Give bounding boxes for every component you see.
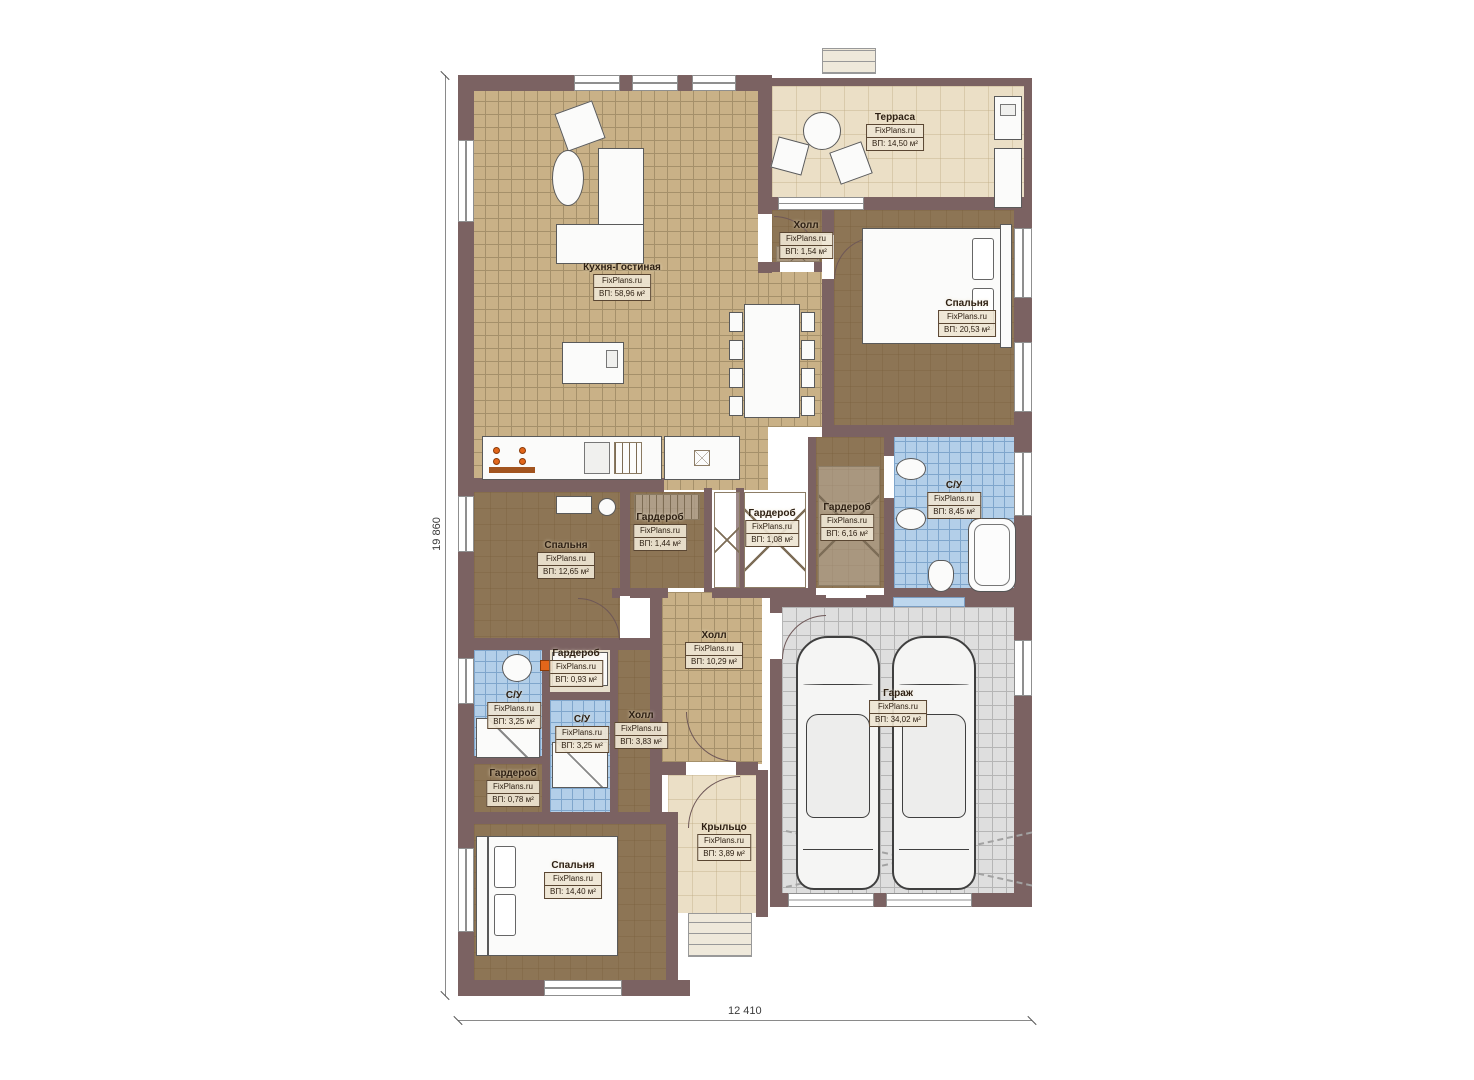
room-label-terrace: Терраса FixPlans.ru ВП: 14,50 м²: [866, 112, 924, 151]
room-label-wardrobe-3: Гардероб FixPlans.ru ВП: 6,16 м²: [820, 502, 874, 541]
room-name: Гардероб: [633, 512, 687, 523]
washbasin-round: [502, 654, 532, 682]
room-label-wardrobe-1: Гардероб FixPlans.ru ВП: 1,44 м²: [633, 512, 687, 551]
sofa-horizontal: [556, 224, 644, 264]
dining-chair: [801, 340, 815, 360]
dimension-label-bottom: 12 410: [728, 1005, 762, 1017]
car-2: [892, 636, 976, 890]
floor-plan-canvas: 19 860 12 410 Терраса FixPlans.ru ВП: 14…: [0, 0, 1474, 1080]
kitchen-sink: [584, 442, 610, 474]
window-top-2: [632, 75, 678, 91]
room-label-wardrobe-4: Гардероб FixPlans.ru ВП: 0,93 м²: [549, 648, 603, 687]
wall-wardrobe1-right: [704, 488, 712, 592]
wall-exterior-right: [1014, 197, 1032, 907]
room-area: ВП: 3,25 м²: [488, 716, 540, 728]
room-brand: FixPlans.ru: [545, 873, 601, 886]
dining-chair: [801, 396, 815, 416]
car-1: [796, 636, 880, 890]
room-brand: FixPlans.ru: [780, 233, 832, 246]
room-area: ВП: 3,25 м²: [556, 740, 608, 752]
island-sink: [606, 350, 618, 368]
stove-burner: [519, 458, 526, 465]
dishwasher-x-icon: [694, 450, 710, 466]
kitchen-appliance: [614, 442, 642, 474]
room-label-hall-top: Холл FixPlans.ru ВП: 1,54 м²: [779, 220, 833, 259]
room-name: Холл: [779, 220, 833, 231]
coffee-table: [552, 150, 584, 206]
room-label-bedroom-right: Спальня FixPlans.ru ВП: 20,53 м²: [938, 298, 996, 337]
wall-bedroom-bottom-top: [458, 812, 678, 824]
room-brand: FixPlans.ru: [698, 835, 750, 848]
window-top-1: [574, 75, 620, 91]
room-name: Гардероб: [820, 502, 874, 513]
room-brand: FixPlans.ru: [928, 493, 980, 506]
bed-bottom-headboard: [476, 836, 488, 956]
room-brand: FixPlans.ru: [487, 781, 539, 794]
room-name: Холл: [614, 710, 668, 721]
room-label-bathroom-right: С/У FixPlans.ru ВП: 8,45 м²: [927, 480, 981, 519]
room-name: Крыльцо: [697, 822, 751, 833]
wall-kitchen-terrace: [758, 78, 772, 203]
room-brand: FixPlans.ru: [550, 661, 602, 674]
room-name: Гардероб: [745, 508, 799, 519]
room-name: Гардероб: [549, 648, 603, 659]
wardrobe-brace: [714, 492, 740, 588]
room-brand: FixPlans.ru: [594, 275, 650, 288]
room-label-kitchen-living: Кухня-Гостиная FixPlans.ru ВП: 58,96 м²: [583, 262, 661, 301]
garage-door-2: [886, 893, 972, 907]
washbasin: [896, 458, 926, 480]
room-area: ВП: 12,65 м²: [538, 566, 594, 578]
room-name: Спальня: [938, 298, 996, 309]
oven-strip: [489, 467, 535, 473]
room-brand: FixPlans.ru: [821, 515, 873, 528]
room-name: Холл: [685, 630, 743, 641]
pouf: [598, 498, 616, 516]
room-name: Гардероб: [486, 768, 540, 779]
wall-hall-center-left: [650, 592, 662, 812]
dining-chair: [729, 340, 743, 360]
room-name: С/У: [555, 714, 609, 725]
room-label-bathroom-left: С/У FixPlans.ru ВП: 3,25 м²: [487, 690, 541, 729]
room-name: С/У: [487, 690, 541, 701]
room-label-bathroom-mid: С/У FixPlans.ru ВП: 3,25 м²: [555, 714, 609, 753]
toilet: [928, 560, 954, 592]
garage-door-1: [788, 893, 874, 907]
bathtub: [968, 518, 1016, 592]
window-left-bedroom-bottom: [458, 848, 474, 932]
dimension-label-left: 19 860: [431, 517, 443, 551]
room-brand: FixPlans.ru: [556, 727, 608, 740]
window-left-bathroom: [458, 658, 474, 704]
wall-wardrobe4-bottom: [550, 692, 610, 700]
room-brand: FixPlans.ru: [870, 701, 926, 714]
bed-right-headboard: [1000, 224, 1012, 348]
door-gap-bathroom-right: [884, 456, 894, 498]
door-gap-hall-top: [758, 214, 772, 262]
dining-chair: [801, 312, 815, 332]
wall-wardrobe3-left: [808, 437, 816, 592]
room-name: Спальня: [537, 540, 595, 551]
wall-kitchen-bottom: [458, 478, 664, 492]
room-name: Терраса: [866, 112, 924, 123]
room-brand: FixPlans.ru: [686, 643, 742, 656]
pillow: [494, 846, 516, 888]
window-terrace-door: [778, 197, 864, 210]
window-garage-top: [893, 597, 965, 607]
dining-chair: [729, 368, 743, 388]
dresser: [556, 496, 592, 514]
room-name: Спальня: [544, 860, 602, 871]
room-area: ВП: 14,40 м²: [545, 886, 601, 898]
room-area: ВП: 34,02 м²: [870, 714, 926, 726]
room-area: ВП: 8,45 м²: [928, 506, 980, 518]
room-brand: FixPlans.ru: [634, 525, 686, 538]
wall-terrace-right: [1024, 78, 1032, 202]
room-area: ВП: 3,83 м²: [615, 736, 667, 748]
window-right-garage: [1014, 640, 1032, 696]
stove-burner: [493, 458, 500, 465]
room-name: Гараж: [869, 688, 927, 699]
wall-porch-right: [756, 770, 768, 917]
wall-bedroom-bottom-right: [666, 824, 678, 986]
room-area: ВП: 10,29 м²: [686, 656, 742, 668]
door-gap-bedroom-left: [620, 596, 630, 638]
room-brand: FixPlans.ru: [615, 723, 667, 736]
window-left-kitchen: [458, 140, 474, 222]
dimension-line-left: [445, 75, 446, 996]
room-label-porch: Крыльцо FixPlans.ru ВП: 3,89 м²: [697, 822, 751, 861]
wall-terrace-top: [772, 78, 1028, 86]
room-area: ВП: 1,54 м²: [780, 246, 832, 258]
room-name: С/У: [927, 480, 981, 491]
outdoor-kitchen-unit: [994, 96, 1022, 140]
door-gap-wardrobe3: [826, 588, 866, 598]
door-gap-garage: [770, 613, 782, 659]
room-label-bedroom-bottom: Спальня FixPlans.ru ВП: 14,40 м²: [544, 860, 602, 899]
dimension-line-bottom: [458, 1020, 1032, 1021]
room-label-wardrobe-5: Гардероб FixPlans.ru ВП: 0,78 м²: [486, 768, 540, 807]
window-left-bedroom: [458, 496, 474, 552]
washbasin: [896, 508, 926, 530]
window-right-bathroom: [1014, 452, 1032, 516]
terrace-step-lines: [822, 48, 876, 74]
dining-table: [744, 304, 800, 418]
dining-chair: [729, 312, 743, 332]
dining-chair: [729, 396, 743, 416]
outdoor-sink: [1000, 104, 1016, 116]
window-right-bedroom-2: [1014, 342, 1032, 412]
dining-chair: [801, 368, 815, 388]
room-label-hall-lower: Холл FixPlans.ru ВП: 3,83 м²: [614, 710, 668, 749]
room-label-bedroom-left: Спальня FixPlans.ru ВП: 12,65 м²: [537, 540, 595, 579]
room-area: ВП: 6,16 м²: [821, 528, 873, 540]
outdoor-counter: [994, 148, 1022, 208]
window-right-bedroom-1: [1014, 228, 1032, 298]
wall-bedroom-right-bottom: [822, 425, 1032, 437]
room-area: ВП: 1,08 м²: [746, 534, 798, 546]
room-area: ВП: 0,93 м²: [550, 674, 602, 686]
room-area: ВП: 3,89 м²: [698, 848, 750, 860]
room-area: ВП: 1,44 м²: [634, 538, 686, 550]
stove-burner: [493, 447, 500, 454]
window-bottom-bedroom: [544, 980, 622, 996]
door-gap-entrance: [686, 762, 736, 775]
pillow: [972, 238, 994, 280]
room-brand: FixPlans.ru: [939, 311, 995, 324]
porch-steps: [688, 913, 752, 957]
room-area: ВП: 14,50 м²: [867, 138, 923, 150]
room-area: ВП: 58,96 м²: [594, 288, 650, 300]
room-brand: FixPlans.ru: [488, 703, 540, 716]
room-label-garage: Гараж FixPlans.ru ВП: 34,02 м²: [869, 688, 927, 727]
room-brand: FixPlans.ru: [538, 553, 594, 566]
pillow: [494, 894, 516, 936]
stove-burner: [519, 447, 526, 454]
room-area: ВП: 20,53 м²: [939, 324, 995, 336]
room-label-wardrobe-2: Гардероб FixPlans.ru ВП: 1,08 м²: [745, 508, 799, 547]
window-top-3: [692, 75, 736, 91]
room-brand: FixPlans.ru: [867, 125, 923, 138]
room-name: Кухня-Гостиная: [583, 262, 661, 273]
room-area: ВП: 0,78 м²: [487, 794, 539, 806]
room-brand: FixPlans.ru: [746, 521, 798, 534]
door-gap-hall-top-bottom: [780, 262, 814, 272]
room-label-hall-center: Холл FixPlans.ru ВП: 10,29 м²: [685, 630, 743, 669]
